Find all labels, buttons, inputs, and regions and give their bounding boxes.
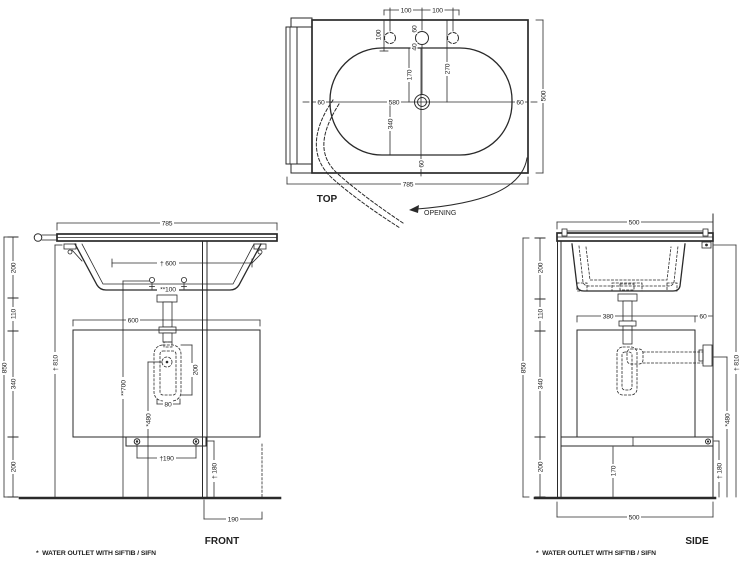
dim-front-fixing-span: † 600 xyxy=(112,259,252,268)
svg-text:500: 500 xyxy=(541,90,548,101)
inlet-tap-left-icon xyxy=(149,277,154,282)
dim-top-depth: 500 xyxy=(536,20,548,173)
side-view: 850 200 110 340 200 500 xyxy=(520,214,741,547)
dim-hole-gap-left: 100 xyxy=(401,8,412,15)
siphon-trap-outline xyxy=(154,345,181,401)
rail-post-icon xyxy=(562,229,567,236)
dim-basin-depth: 340 xyxy=(387,117,395,131)
dim-front-overall-height: 850 xyxy=(1,237,11,497)
svg-text:170: 170 xyxy=(611,465,618,476)
svg-text:110: 110 xyxy=(538,308,545,319)
dim-outlet-height-front: *480 xyxy=(145,362,163,497)
legend-side: * WATER OUTLET WITH SIFTIB / SIFN ** WAT… xyxy=(536,532,656,563)
svg-text:500: 500 xyxy=(629,220,640,227)
dim-front-fixing-height: † 810 xyxy=(52,245,63,497)
svg-text:170: 170 xyxy=(407,69,414,80)
dim-edge-to-center: 270 xyxy=(444,62,452,76)
svg-text:190: 190 xyxy=(228,517,239,524)
svg-text:580: 580 xyxy=(389,100,400,107)
side-siphon-hidden xyxy=(617,345,712,395)
opening-label: OPENING xyxy=(424,210,456,217)
dim-top-width: 785 xyxy=(287,177,528,189)
svg-text:785: 785 xyxy=(162,221,173,228)
dim-side-recess: 190 xyxy=(204,500,262,524)
dim-inlet-spacing: **100 xyxy=(160,287,176,294)
svg-text:100: 100 xyxy=(376,29,383,40)
top-view-title: TOP xyxy=(317,194,338,205)
svg-text:200: 200 xyxy=(11,262,18,273)
dim-inlet-height: **700 xyxy=(120,281,150,497)
svg-text:200: 200 xyxy=(11,461,18,472)
svg-text:785: 785 xyxy=(403,182,414,189)
svg-text:200: 200 xyxy=(538,461,545,472)
wall-outlet-box xyxy=(703,345,712,366)
svg-text:850: 850 xyxy=(521,362,528,373)
svg-text:† 810: † 810 xyxy=(734,355,741,371)
front-lower-bracket xyxy=(126,437,206,446)
side-bottom-shelf xyxy=(561,437,712,446)
svg-text:60: 60 xyxy=(412,25,419,33)
dim-side-depth-bottom: 500 xyxy=(557,502,713,522)
dim-front-width: 785 xyxy=(57,220,277,231)
dim-lower-fixing-span: †190 xyxy=(137,445,196,463)
svg-text:†190: †190 xyxy=(159,456,174,463)
towel-rail-top xyxy=(286,18,312,173)
dim-lower-fixing-height-front: † 180 xyxy=(207,441,219,497)
front-view: 850 200 110 340 200 † 8 xyxy=(1,220,281,548)
svg-text:340: 340 xyxy=(388,118,395,129)
side-countertop xyxy=(557,229,713,241)
dim-trap-width: 80 xyxy=(157,399,180,409)
svg-text:270: 270 xyxy=(445,63,452,74)
svg-text:340: 340 xyxy=(538,378,545,389)
dim-hole-gap-right: 100 xyxy=(432,8,443,15)
svg-text:*480: *480 xyxy=(725,413,732,427)
svg-text:60: 60 xyxy=(516,100,524,107)
dim-hole-to-basin: 40 xyxy=(411,42,419,52)
svg-text:380: 380 xyxy=(603,314,614,321)
dim-edge-to-hole: 60 xyxy=(411,24,419,34)
svg-text:† 180: † 180 xyxy=(212,463,219,479)
dim-drain-offset: 380 60 xyxy=(577,313,712,323)
front-countertop xyxy=(34,234,277,242)
svg-text:**700: **700 xyxy=(121,380,128,396)
dim-plinth-height: 170 xyxy=(610,447,618,497)
dim-right-margin: 60 xyxy=(515,99,525,107)
opening-arrowhead-icon xyxy=(409,205,419,213)
svg-text:*480: *480 xyxy=(146,413,153,427)
svg-text:† 810: † 810 xyxy=(53,355,60,371)
dim-side-chain: 200 110 340 200 xyxy=(535,238,545,497)
svg-text:200: 200 xyxy=(538,262,545,273)
dim-side-overall-height: 850 xyxy=(520,238,530,497)
dim-front-chain: 200 110 340 200 xyxy=(8,237,18,497)
svg-text:40: 40 xyxy=(412,43,419,51)
side-view-title: SIDE xyxy=(685,536,709,547)
svg-text:600: 600 xyxy=(128,318,139,325)
dim-left-margin: 60 xyxy=(316,99,326,107)
side-basin xyxy=(572,244,685,291)
svg-text:110: 110 xyxy=(11,308,18,319)
dim-side-depth-top: 500 xyxy=(557,219,713,230)
rail-post-icon xyxy=(703,229,708,236)
svg-text:850: 850 xyxy=(2,362,9,373)
water-inlet-taps: **100 xyxy=(149,277,186,293)
side-back-panel xyxy=(577,330,695,437)
dim-lower-fixing-height-side: † 180 xyxy=(714,441,724,497)
front-leg xyxy=(203,241,208,497)
legend-front: * WATER OUTLET WITH SIFTIB / SIFN ** WAT… xyxy=(36,532,156,563)
washbasin-drawing: 100 100 100 60 40 170 270 580 xyxy=(0,0,750,563)
svg-text:† 180: † 180 xyxy=(717,463,724,479)
svg-text:† 600: † 600 xyxy=(160,261,176,268)
dim-basin-to-center: 170 xyxy=(406,68,414,82)
svg-text:60: 60 xyxy=(419,160,426,168)
svg-text:200: 200 xyxy=(193,364,200,375)
dim-basin-width: 580 xyxy=(387,99,401,107)
front-view-title: FRONT xyxy=(205,536,239,547)
side-drain-stack xyxy=(618,294,637,344)
svg-text:60: 60 xyxy=(317,100,325,107)
svg-text:500: 500 xyxy=(629,515,640,522)
dim-hole-depth: 100 xyxy=(375,28,383,42)
dim-trap-body: 200 xyxy=(181,345,200,395)
top-view: 100 100 100 60 40 170 270 580 xyxy=(286,7,548,229)
legend-line-water-outlet: * WATER OUTLET WITH SIFTIB / SIFN xyxy=(536,550,656,559)
svg-text:80: 80 xyxy=(164,402,172,409)
front-back-panel xyxy=(73,330,260,437)
inlet-tap-right-icon xyxy=(181,277,186,282)
dim-wall-gap: 60 xyxy=(699,314,707,321)
dim-bottom-margin: 60 xyxy=(418,159,426,169)
side-leg xyxy=(558,241,562,497)
front-drain-stack xyxy=(154,295,181,401)
legend-line-water-outlet: * WATER OUTLET WITH SIFTIB / SIFN xyxy=(36,550,156,559)
technical-drawing-canvas: 100 100 100 60 40 170 270 580 xyxy=(0,0,750,563)
svg-text:340: 340 xyxy=(11,378,18,389)
side-upper-fixing xyxy=(702,242,711,248)
countertop-outline xyxy=(312,20,528,173)
towel-rail-end-icon xyxy=(34,234,42,242)
